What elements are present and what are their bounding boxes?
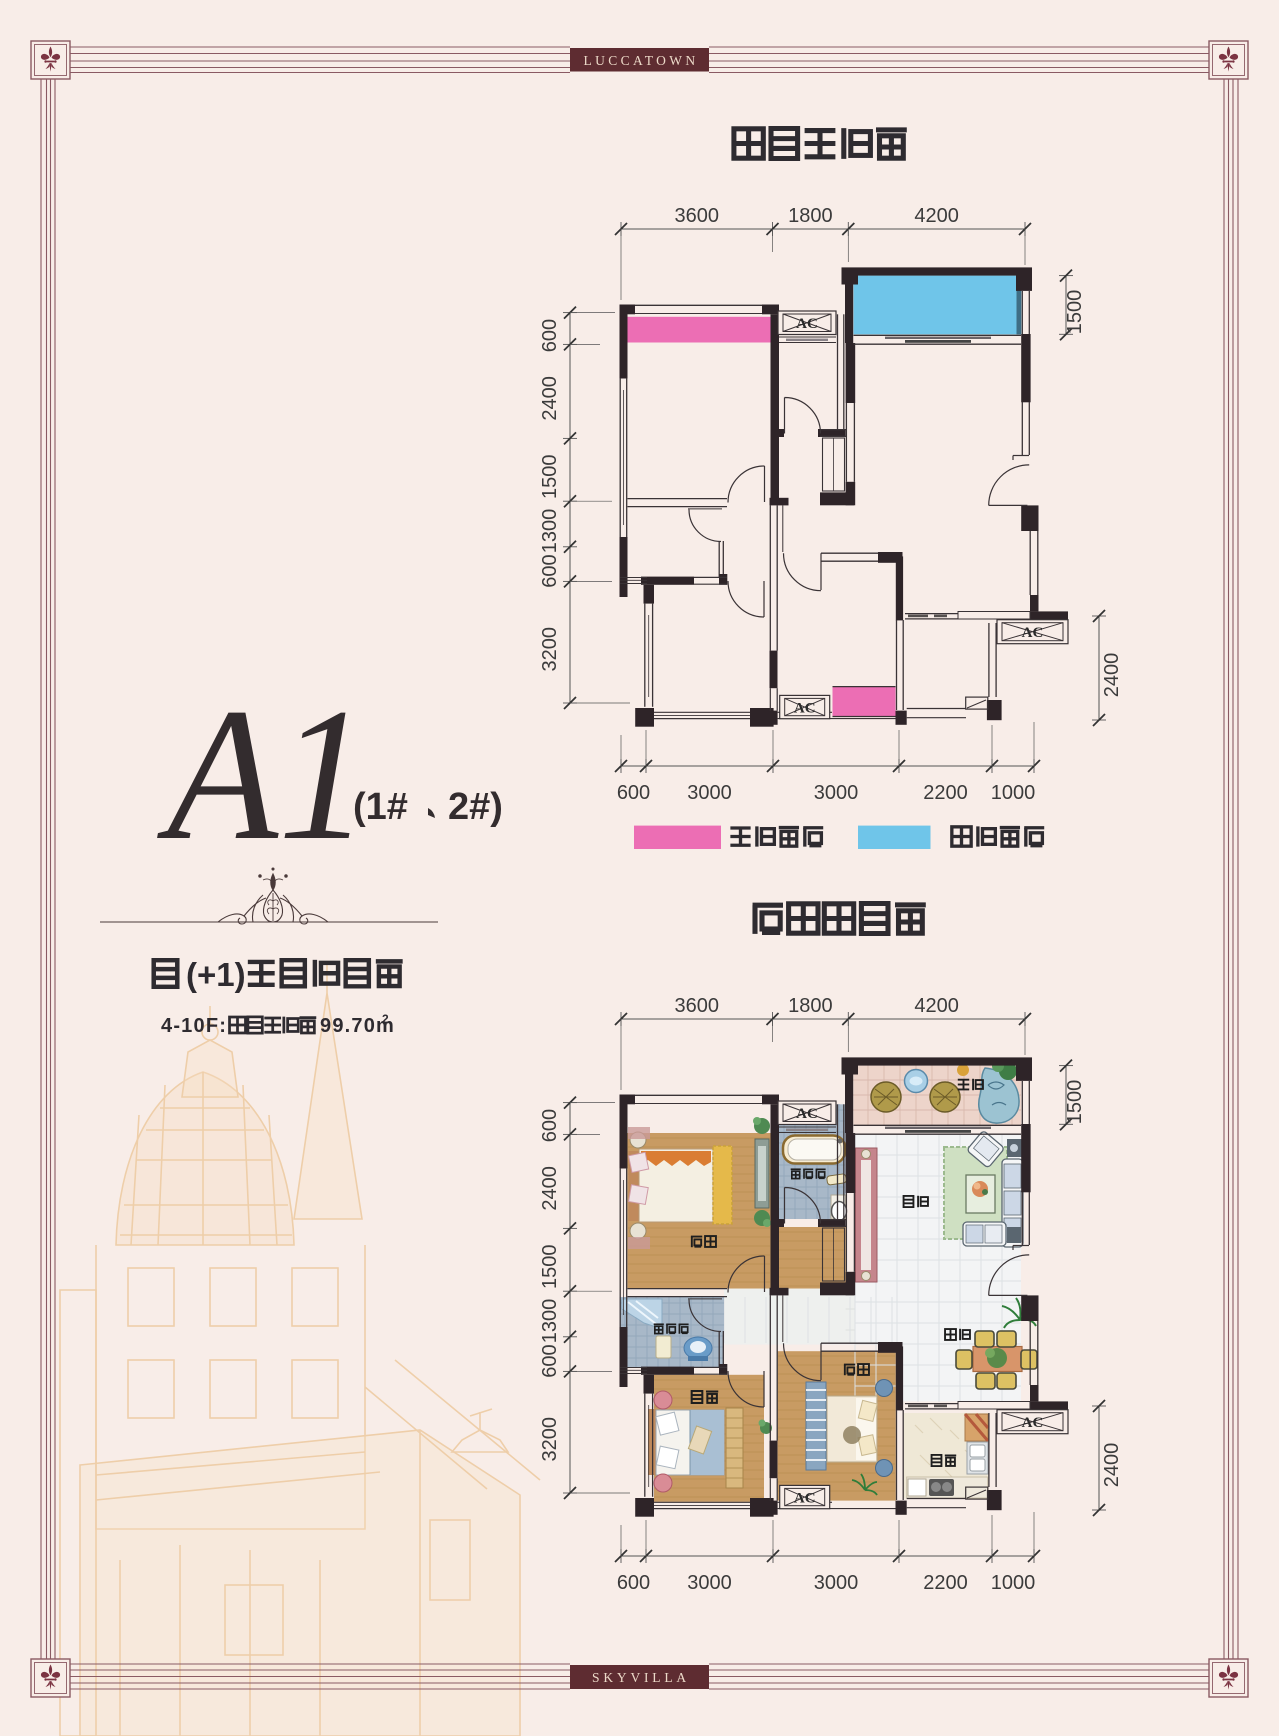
svg-text:2400: 2400 bbox=[539, 1166, 561, 1211]
svg-text:1000: 1000 bbox=[991, 782, 1036, 804]
svg-text:3200: 3200 bbox=[539, 1417, 561, 1462]
svg-text:AC: AC bbox=[1022, 625, 1044, 641]
svg-text:A1: A1 bbox=[156, 670, 369, 880]
svg-text:600: 600 bbox=[539, 319, 561, 352]
svg-text:2400: 2400 bbox=[1101, 1443, 1123, 1488]
svg-text:3600: 3600 bbox=[675, 205, 720, 227]
svg-text:LUCCATOWN: LUCCATOWN bbox=[583, 53, 698, 68]
svg-text:3000: 3000 bbox=[687, 1572, 732, 1594]
svg-text:4-10F:: 4-10F: bbox=[161, 1015, 227, 1037]
svg-text:600: 600 bbox=[539, 554, 561, 587]
svg-text:AC: AC bbox=[796, 316, 818, 332]
svg-text:2: 2 bbox=[382, 1012, 389, 1026]
svg-text:2200: 2200 bbox=[923, 1572, 968, 1594]
svg-text:1500: 1500 bbox=[1064, 290, 1086, 335]
svg-text:1500: 1500 bbox=[539, 1245, 561, 1290]
svg-text:1800: 1800 bbox=[788, 995, 833, 1017]
svg-text:1000: 1000 bbox=[991, 1572, 1036, 1594]
svg-text:(1#: (1# bbox=[353, 786, 408, 828]
svg-text:3600: 3600 bbox=[675, 995, 720, 1017]
svg-text:1500: 1500 bbox=[1064, 1080, 1086, 1125]
svg-text:600: 600 bbox=[617, 1572, 650, 1594]
svg-text:AC: AC bbox=[1022, 1415, 1044, 1431]
svg-text:1800: 1800 bbox=[788, 205, 833, 227]
svg-text:2200: 2200 bbox=[923, 782, 968, 804]
svg-text:3200: 3200 bbox=[539, 627, 561, 672]
svg-text:SKYVILLA: SKYVILLA bbox=[592, 1670, 690, 1685]
svg-text:3000: 3000 bbox=[814, 1572, 859, 1594]
svg-text:600: 600 bbox=[539, 1109, 561, 1142]
svg-text:(+1): (+1) bbox=[186, 956, 246, 993]
svg-text:1300: 1300 bbox=[539, 1299, 561, 1344]
svg-text:AC: AC bbox=[794, 700, 816, 716]
svg-text:600: 600 bbox=[617, 782, 650, 804]
svg-text:AC: AC bbox=[796, 1106, 818, 1122]
svg-text:AC: AC bbox=[794, 1490, 816, 1506]
svg-text:2400: 2400 bbox=[1101, 653, 1123, 698]
svg-text:2400: 2400 bbox=[539, 376, 561, 421]
svg-text:3000: 3000 bbox=[687, 782, 732, 804]
svg-text:1500: 1500 bbox=[539, 455, 561, 500]
svg-text:3000: 3000 bbox=[814, 782, 859, 804]
svg-text:4200: 4200 bbox=[914, 995, 959, 1017]
svg-text:4200: 4200 bbox=[914, 205, 959, 227]
svg-text:2#): 2#) bbox=[448, 786, 503, 828]
svg-text:600: 600 bbox=[539, 1344, 561, 1377]
svg-text:1300: 1300 bbox=[539, 509, 561, 554]
